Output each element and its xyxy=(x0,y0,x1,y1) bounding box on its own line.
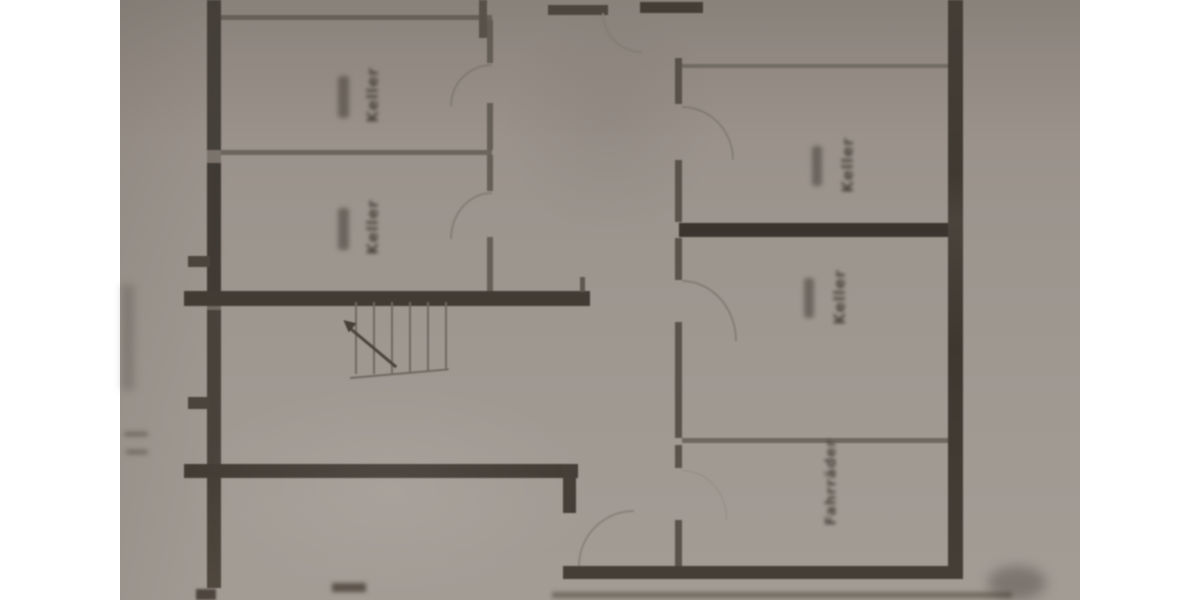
wall-top-stub xyxy=(479,0,487,38)
wall-right-block-left xyxy=(675,445,682,468)
room-label: Keller xyxy=(831,269,849,324)
wall-right-block-left xyxy=(675,160,682,222)
wall-thick-divider-a xyxy=(184,291,590,306)
wall-right-thick-divider xyxy=(679,223,963,237)
wall-left-top xyxy=(221,15,492,20)
stair-tread xyxy=(409,302,411,373)
screenshot-canvas: Keller Keller Keller Keller Fahrräder xyxy=(0,0,1200,600)
photo-bottom-edge-line xyxy=(552,592,1012,598)
wall-corridor-segment xyxy=(487,103,493,150)
door-arc xyxy=(450,64,492,106)
wall-right-main xyxy=(948,0,963,579)
wall-top-segment xyxy=(548,5,608,15)
wall-right-block-left xyxy=(675,58,682,104)
door-jamb-tick xyxy=(580,277,585,292)
room-label-smudge xyxy=(338,208,349,250)
door-arc-entrance xyxy=(578,510,634,566)
stair-tread xyxy=(373,302,375,374)
door-arc xyxy=(602,13,642,53)
wall-right-top-divider xyxy=(682,64,950,68)
wall-bottom-corner-stub xyxy=(563,464,576,513)
wall-tick xyxy=(188,397,210,409)
wall-fragment xyxy=(332,583,366,592)
room-label-bike: Fahrräder xyxy=(823,439,839,526)
floorplan-photo: Keller Keller Keller Keller Fahrräder xyxy=(120,0,1080,600)
wall-tick xyxy=(188,256,210,267)
margin-annotation-smudge xyxy=(126,450,148,454)
stair-tread xyxy=(355,302,357,374)
margin-annotation-smudge xyxy=(124,432,148,436)
stair-tread xyxy=(445,302,447,370)
wall-right-thin-divider xyxy=(682,438,958,443)
room-label-smudge xyxy=(812,146,822,186)
room-label-smudge xyxy=(804,278,814,318)
wall-left-divider xyxy=(221,150,492,155)
wall-right-block-left xyxy=(675,322,682,438)
wall-fragment xyxy=(196,589,216,600)
floorplan-linework xyxy=(120,0,1080,600)
room-label: Keller xyxy=(364,199,382,254)
door-arc xyxy=(682,470,727,519)
room-label: Keller xyxy=(839,137,857,192)
wall-corridor-segment xyxy=(487,155,493,191)
stair-bottom-line xyxy=(350,368,449,379)
wall-right-block-left xyxy=(675,238,682,280)
wall-corridor-segment xyxy=(487,20,493,63)
wall-corridor-segment xyxy=(487,237,493,291)
door-arc xyxy=(682,280,737,341)
door-arc xyxy=(450,192,492,239)
door-arc xyxy=(682,106,734,160)
wall-right-block-left xyxy=(675,520,682,566)
margin-annotation-smudge xyxy=(122,285,134,390)
wall-bottom-main xyxy=(563,566,963,579)
stair-tread xyxy=(427,302,429,372)
wall-thick-divider-b xyxy=(184,464,578,478)
room-label-smudge xyxy=(338,76,349,118)
room-label: Keller xyxy=(364,67,382,122)
wall-top-segment xyxy=(640,2,703,13)
